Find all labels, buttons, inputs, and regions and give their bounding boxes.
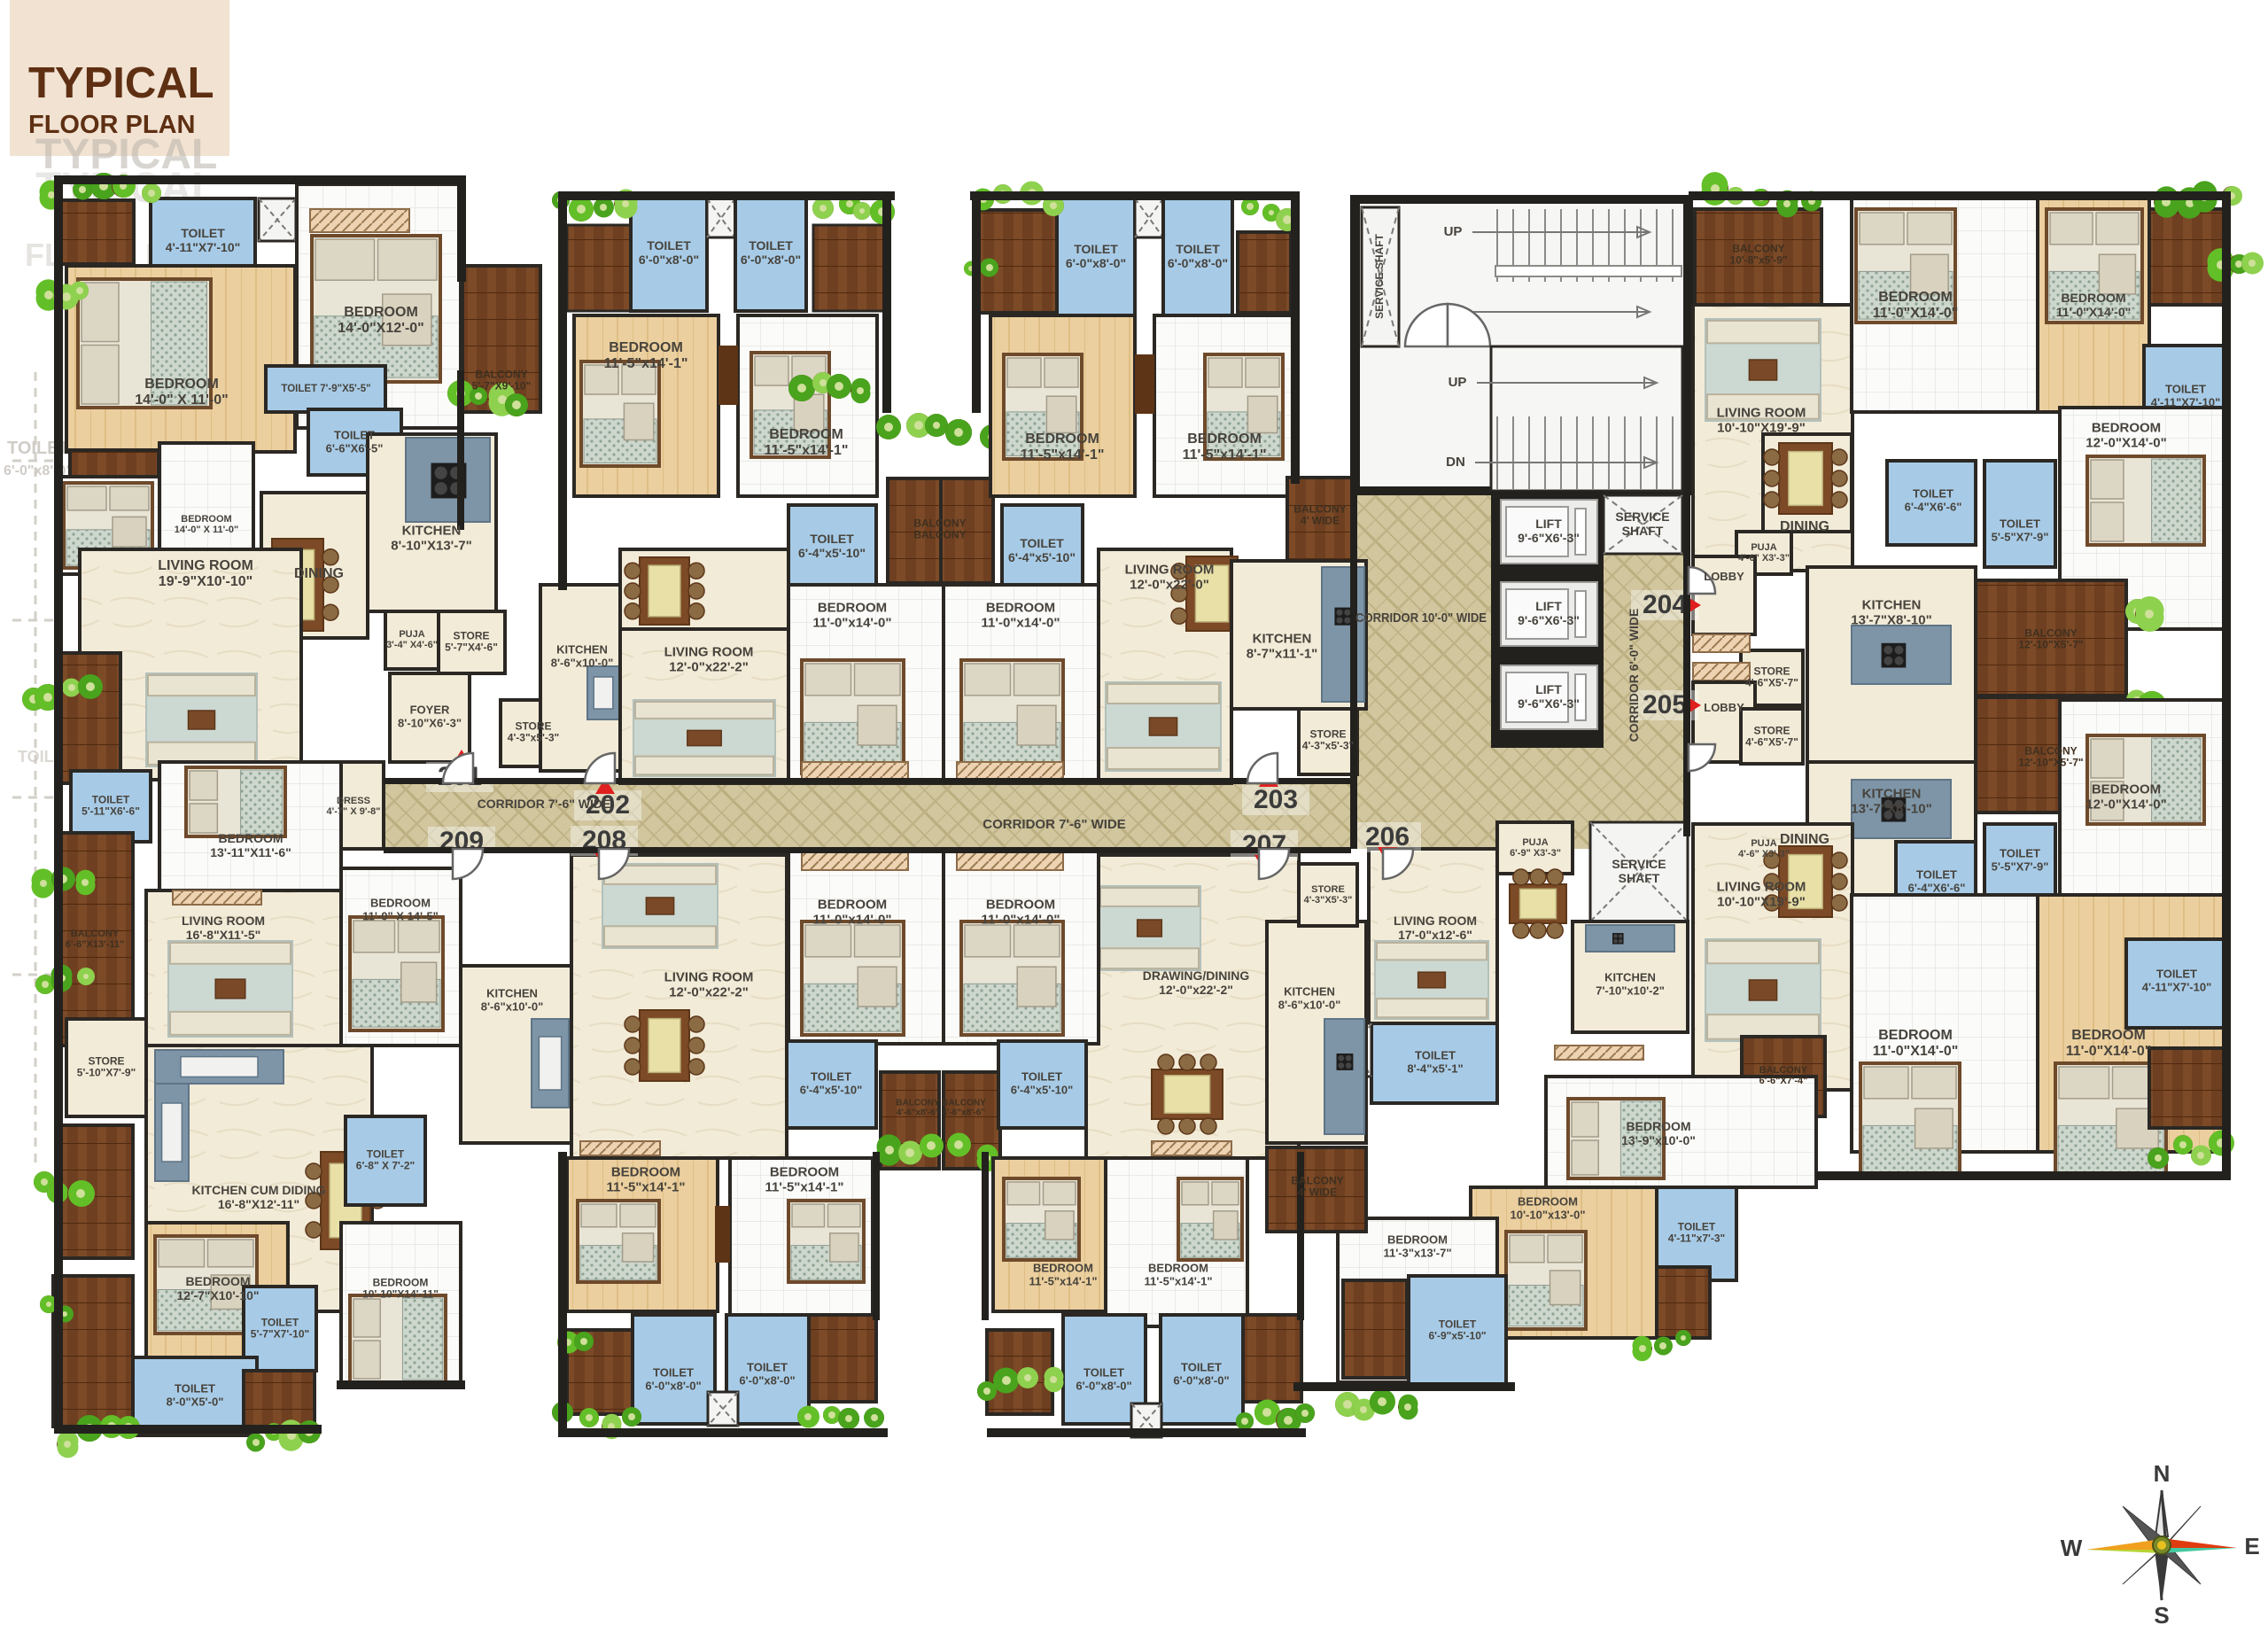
- svg-text:TOILET6'-4"X6'-6": TOILET6'-4"X6'-6": [1908, 868, 1966, 895]
- svg-text:BEDROOM11'-5"x14'-1": BEDROOM11'-5"x14'-1": [1144, 1262, 1212, 1288]
- svg-text:LIVING ROOM19'-9"X10'-10": LIVING ROOM19'-9"X10'-10": [158, 558, 253, 589]
- svg-text:DINING: DINING: [294, 566, 344, 581]
- svg-text:SERVICE SHAFT: SERVICE SHAFT: [1373, 233, 1386, 318]
- svg-text:TOILET6'-0"x8'-0": TOILET6'-0"x8'-0": [741, 238, 801, 267]
- svg-text:206: 206: [1365, 822, 1410, 851]
- svg-text:BEDROOM11'-0"X14'-0": BEDROOM11'-0"X14'-0": [2056, 291, 2132, 319]
- svg-text:BEDROOM14'-0"X12'-0": BEDROOM14'-0"X12'-0": [338, 305, 424, 336]
- svg-text:SERVICESHAFT: SERVICESHAFT: [1612, 857, 1666, 885]
- svg-text:BEDROOM11'-5"x14'-1": BEDROOM11'-5"x14'-1": [1021, 432, 1105, 463]
- svg-text:LOBBY: LOBBY: [1704, 701, 1744, 714]
- svg-text:TOILET6'-0"x8'-0": TOILET6'-0"x8'-0": [1168, 242, 1228, 270]
- svg-text:KITCHEN8'-6"x10'-0": KITCHEN8'-6"x10'-0": [481, 987, 544, 1014]
- svg-text:BEDROOM13'-9"x10'-0": BEDROOM13'-9"x10'-0": [1621, 1119, 1696, 1147]
- svg-text:BEDROOM11'-5"x14'-1": BEDROOM11'-5"x14'-1": [607, 1165, 686, 1195]
- svg-text:LIVING ROOM12'-0"x22'-2": LIVING ROOM12'-0"x22'-2": [664, 645, 754, 675]
- svg-text:LOBBY: LOBBY: [1704, 570, 1744, 583]
- svg-text:SERVICESHAFT: SERVICESHAFT: [1615, 509, 1669, 538]
- svg-text:KITCHEN8'-6"x10'-0": KITCHEN8'-6"x10'-0": [1278, 985, 1341, 1012]
- svg-text:LIVING ROOM10'-10"X19'-9": LIVING ROOM10'-10"X19'-9": [1717, 880, 1806, 910]
- svg-text:TOILET6'-0"x8'-0": TOILET6'-0"x8'-0": [1076, 1366, 1131, 1393]
- svg-text:BEDROOM11'-0"x14'-0": BEDROOM11'-0"x14'-0": [982, 601, 1060, 631]
- svg-text:BEDROOM11'-0"x14'-0": BEDROOM11'-0"x14'-0": [813, 601, 892, 631]
- svg-text:205: 205: [1643, 690, 1687, 719]
- svg-text:DINING: DINING: [1780, 519, 1829, 534]
- svg-text:LIVING ROOM17'-0"x12'-6": LIVING ROOM17'-0"x12'-6": [1394, 914, 1477, 942]
- svg-text:STORE4'-3"x5'-3": STORE4'-3"x5'-3": [508, 719, 559, 743]
- svg-text:W: W: [2061, 1535, 2083, 1561]
- svg-text:LIVING ROOM12'-0"x22'-2": LIVING ROOM12'-0"x22'-2": [664, 970, 754, 1000]
- svg-text:BALCONY10'-8"x5'-9": BALCONY10'-8"x5'-9": [1729, 242, 1787, 266]
- svg-text:BALCONY5'-7"X9'-10": BALCONY5'-7"X9'-10": [472, 368, 531, 392]
- svg-text:BALCONY12'-10"X5'-7": BALCONY12'-10"X5'-7": [2018, 744, 2083, 768]
- svg-text:TYPICAL: TYPICAL: [28, 59, 214, 107]
- svg-text:N: N: [2154, 1460, 2171, 1487]
- svg-text:BALCONYBALCONY: BALCONYBALCONY: [913, 517, 966, 540]
- svg-text:CORRIDOR 7'-6" WIDE: CORRIDOR 7'-6" WIDE: [478, 797, 611, 811]
- svg-text:BEDROOM11'-0"x14'-0": BEDROOM11'-0"x14'-0": [982, 898, 1060, 928]
- svg-text:LIVING ROOM10'-10"X19'-9": LIVING ROOM10'-10"X19'-9": [1717, 406, 1806, 436]
- svg-text:BEDROOM12'-0"X14'-0": BEDROOM12'-0"X14'-0": [2085, 421, 2166, 451]
- svg-text:TOILET6'-4"X6'-6": TOILET6'-4"X6'-6": [1905, 487, 1962, 514]
- svg-text:TOILET6'-0"x8'-0": TOILET6'-0"x8'-0": [1173, 1361, 1229, 1388]
- svg-text:BEDROOM12'-0"X14'-0": BEDROOM12'-0"X14'-0": [2085, 782, 2166, 812]
- svg-text:LIVING ROOM12'-0"x22'-0": LIVING ROOM12'-0"x22'-0": [1125, 563, 1215, 593]
- svg-text:BEDROOM11'-5"x14'-1": BEDROOM11'-5"x14'-1": [1183, 432, 1267, 463]
- svg-text:LIVING ROOM16'-8"X11'-5": LIVING ROOM16'-8"X11'-5": [182, 914, 265, 942]
- svg-text:BALCONY BALCONY4'-6"x8'-6" 4: BALCONY BALCONY4'-6"x8'-6" 4'-6"x8'-6": [896, 1098, 986, 1117]
- svg-text:TOILET8'-0"X5'-0": TOILET8'-0"X5'-0": [167, 1382, 224, 1409]
- svg-text:203: 203: [1254, 785, 1298, 814]
- svg-text:DINING: DINING: [1780, 832, 1829, 847]
- svg-text:E: E: [2244, 1533, 2259, 1559]
- svg-text:KITCHEN8'-6"x10'-0": KITCHEN8'-6"x10'-0": [551, 643, 614, 670]
- svg-text:BEDROOM11'-0"x14'-0": BEDROOM11'-0"x14'-0": [813, 898, 892, 928]
- svg-text:BEDROOM11'-5"x14'-1": BEDROOM11'-5"x14'-1": [765, 1165, 844, 1195]
- svg-text:BEDROOM10'-10"x13'-0": BEDROOM10'-10"x13'-0": [1510, 1195, 1585, 1222]
- svg-text:BEDROOM13'-11"X11'-6": BEDROOM13'-11"X11'-6": [210, 831, 291, 859]
- svg-text:BALCONY6'-6"X13'-11": BALCONY6'-6"X13'-11": [66, 929, 124, 950]
- svg-text:CORRIDOR 6'-0" WIDE: CORRIDOR 6'-0" WIDE: [1627, 609, 1641, 743]
- svg-text:TOILET6'-0"x8'-0": TOILET6'-0"x8'-0": [639, 238, 699, 267]
- svg-text:KITCHEN13'-7"X8'-10": KITCHEN13'-7"X8'-10": [1851, 598, 1931, 628]
- svg-text:BEDROOM11'-5"x14'-1": BEDROOM11'-5"x14'-1": [765, 427, 849, 458]
- svg-text:BEDROOM11'-5"x14'-1": BEDROOM11'-5"x14'-1": [1029, 1262, 1097, 1288]
- svg-text:TOILET6'-0"x8'-0": TOILET6'-0"x8'-0": [739, 1361, 795, 1388]
- svg-text:FLOOR PLAN: FLOOR PLAN: [28, 111, 196, 139]
- svg-text:204: 204: [1643, 590, 1687, 619]
- svg-text:KITCHEN8'-7"x11'-1": KITCHEN8'-7"x11'-1": [1247, 632, 1318, 662]
- svg-text:KITCHEN8'-10"X13'-7": KITCHEN8'-10"X13'-7": [391, 524, 471, 554]
- svg-text:BEDROOM11'-0" X 14'-5": BEDROOM11'-0" X 14'-5": [362, 897, 439, 923]
- svg-text:BALCONY4' WIDE: BALCONY4' WIDE: [1293, 502, 1346, 526]
- svg-text:BALCONY4' WIDE: BALCONY4' WIDE: [1291, 1174, 1343, 1198]
- svg-text:BEDROOM10'-10"X14'-11": BEDROOM10'-10"X14'-11": [362, 1276, 439, 1300]
- svg-text:CORRIDOR 7'-6" WIDE: CORRIDOR 7'-6" WIDE: [983, 817, 1126, 832]
- svg-text:DN: DN: [1446, 455, 1465, 470]
- svg-text:TOILET 7'-9"X5'-5": TOILET 7'-9"X5'-5": [281, 384, 370, 394]
- svg-text:CORRIDOR 10'-0" WIDE: CORRIDOR 10'-0" WIDE: [1355, 610, 1487, 626]
- svg-text:UP: UP: [1449, 375, 1467, 390]
- svg-text:BALCONY6'-6"X7'-4": BALCONY6'-6"X7'-4": [1759, 1065, 1808, 1086]
- svg-text:BEDROOM14'-0" X 11'-0": BEDROOM14'-0" X 11'-0": [175, 514, 239, 535]
- svg-text:BEDROOM11'-0"X14'-0": BEDROOM11'-0"X14'-0": [2066, 1028, 2152, 1059]
- svg-text:UP: UP: [1444, 224, 1463, 239]
- svg-text:KITCHEN7'-10"x10'-2": KITCHEN7'-10"x10'-2": [1596, 971, 1665, 998]
- svg-text:TOILET5'-5"X7'-9": TOILET5'-5"X7'-9": [1992, 847, 2049, 874]
- svg-text:STORE4'-3"x5'-3": STORE4'-3"x5'-3": [1302, 727, 1354, 751]
- svg-text:BEDROOM11'-5"x14'-1": BEDROOM11'-5"x14'-1": [604, 340, 688, 371]
- svg-text:BEDROOM14'-0" X 11'-0": BEDROOM14'-0" X 11'-0": [135, 377, 229, 408]
- svg-text:TOILET5'-5"X7'-9": TOILET5'-5"X7'-9": [1992, 517, 2049, 544]
- svg-text:TOILET6'-6"X6'-5": TOILET6'-6"X6'-5": [326, 429, 384, 455]
- svg-text:BEDROOM11'-3"x13'-7": BEDROOM11'-3"x13'-7": [1383, 1233, 1451, 1260]
- svg-text:S: S: [2154, 1602, 2169, 1625]
- svg-text:BEDROOM12'-7"X10'-10": BEDROOM12'-7"X10'-10": [176, 1274, 259, 1302]
- svg-text:BALCONY12'-10"X5'-7": BALCONY12'-10"X5'-7": [2018, 626, 2083, 650]
- svg-text:TOILET6'-0"x8'-0": TOILET6'-0"x8'-0": [1066, 242, 1126, 270]
- svg-text:KITCHEN13'-7"X8'-10": KITCHEN13'-7"X8'-10": [1851, 787, 1931, 817]
- svg-text:TOILET6'-0"x8'-0": TOILET6'-0"x8'-0": [645, 1366, 701, 1393]
- svg-text:BEDROOM11'-0"X14'-0": BEDROOM11'-0"X14'-0": [1873, 290, 1959, 321]
- svg-text:BEDROOM11'-0"X14'-0": BEDROOM11'-0"X14'-0": [1873, 1028, 1959, 1059]
- svg-text:TOILET8'-4"x5'-1": TOILET8'-4"x5'-1": [1407, 1049, 1463, 1076]
